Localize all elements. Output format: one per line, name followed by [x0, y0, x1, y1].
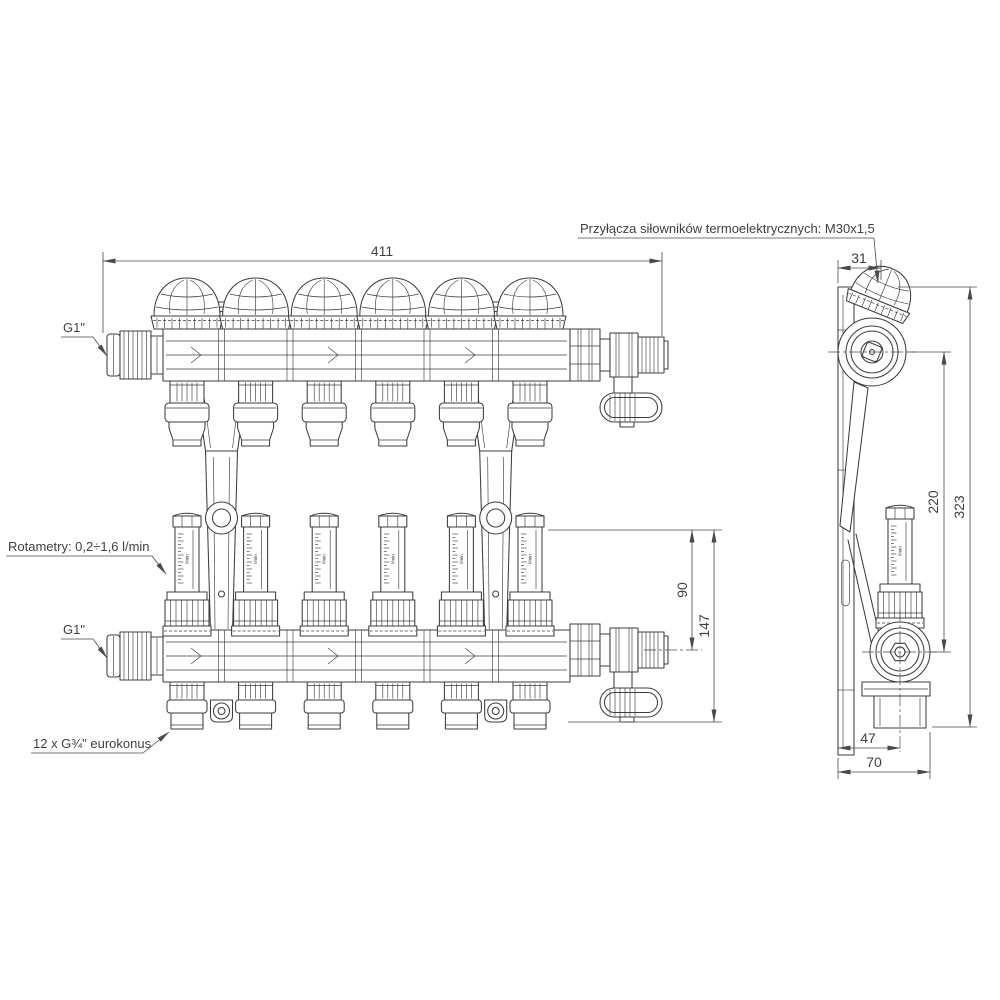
end-assembly-bottom	[570, 624, 668, 722]
top-manifold-body	[163, 329, 570, 381]
svg-text:Przyłącza siłowników termoelek: Przyłącza siłowników termoelektrycznych:…	[580, 221, 875, 236]
dim-47: 47	[860, 730, 876, 746]
bracket-ear-bottom-left	[211, 700, 233, 722]
svg-text:12 x G¾" eurokonus: 12 x G¾" eurokonus	[33, 736, 152, 751]
label-flow-meters: Rotametry: 0,2÷1,6 l/min	[6, 539, 166, 574]
svg-text:411: 411	[371, 243, 394, 259]
inlet-union-top	[107, 331, 163, 379]
side-bottom-assembly	[862, 505, 938, 752]
label-inlet-top: G1"	[61, 320, 107, 356]
bracket-ear-bottom-right	[485, 700, 507, 722]
dim-70: 70	[866, 754, 882, 770]
side-view	[828, 256, 938, 755]
svg-text:Rotametry: 0,2÷1,6 l/min: Rotametry: 0,2÷1,6 l/min	[8, 539, 150, 554]
dim-90: 90	[674, 582, 690, 598]
label-outlets: 12 x G¾" eurokonus	[31, 732, 169, 753]
thermostatic-valve-caps	[151, 278, 566, 329]
inlet-union-bottom	[107, 632, 163, 680]
svg-text:G1": G1"	[63, 320, 85, 335]
svg-text:220: 220	[925, 490, 941, 514]
svg-text:31: 31	[851, 250, 867, 266]
svg-text:G1": G1"	[63, 622, 85, 637]
dim-147: 147	[696, 614, 712, 638]
end-assembly-top	[570, 329, 668, 427]
drawing-canvas: l/min	[0, 0, 1000, 1000]
technical-drawing: l/min	[0, 0, 1000, 1000]
front-view	[107, 278, 668, 729]
svg-text:323: 323	[951, 495, 967, 519]
label-inlet-bottom: G1"	[61, 622, 107, 658]
bottom-manifold-body	[163, 630, 570, 682]
label-actuator-connections: Przyłącza siłowników termoelektrycznych:…	[578, 221, 878, 283]
